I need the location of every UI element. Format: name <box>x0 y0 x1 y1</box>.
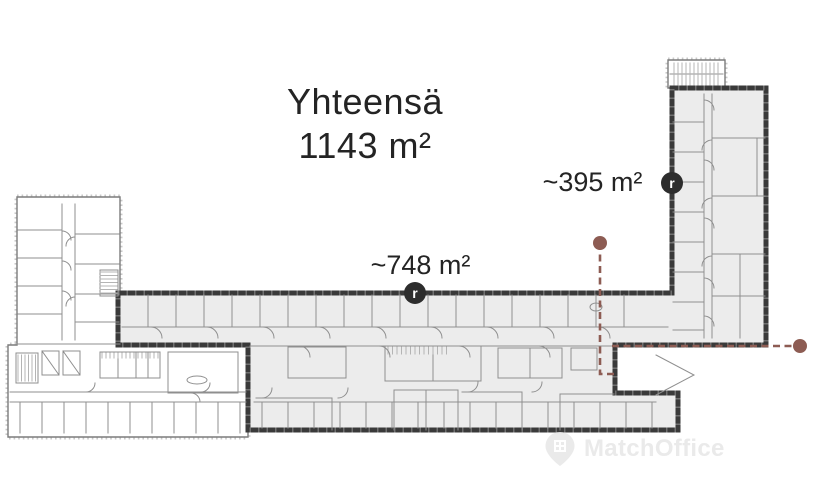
area-395-label: ~395 m² <box>520 167 665 198</box>
area-748-label: ~748 m² <box>348 250 493 281</box>
total-area-title: Yhteensä 1143 m² <box>165 80 565 168</box>
left-band-wc-hatch <box>102 353 158 358</box>
generated-lines <box>100 272 117 293</box>
watermark-brand-text: MatchOffice <box>584 435 725 463</box>
area-748-marker-glyph: r <box>412 285 418 301</box>
area-748-marker: r <box>404 282 426 304</box>
matchoffice-pin-icon <box>544 431 576 467</box>
route-endpoint-dot-top <box>593 236 607 250</box>
floorplan-page: r r Yhteensä 1143 m² ~748 m² ~395 m² Mat… <box>0 0 825 500</box>
route-endpoint-dot-right <box>793 339 807 353</box>
left-wing-shaft-hatch <box>100 272 117 293</box>
total-area-title-line2: 1143 m² <box>165 124 565 168</box>
watermark: MatchOffice <box>544 431 725 467</box>
area-395-marker-glyph: r <box>669 175 675 191</box>
total-area-title-line1: Yhteensä <box>165 80 565 124</box>
generated-lines <box>102 353 158 358</box>
